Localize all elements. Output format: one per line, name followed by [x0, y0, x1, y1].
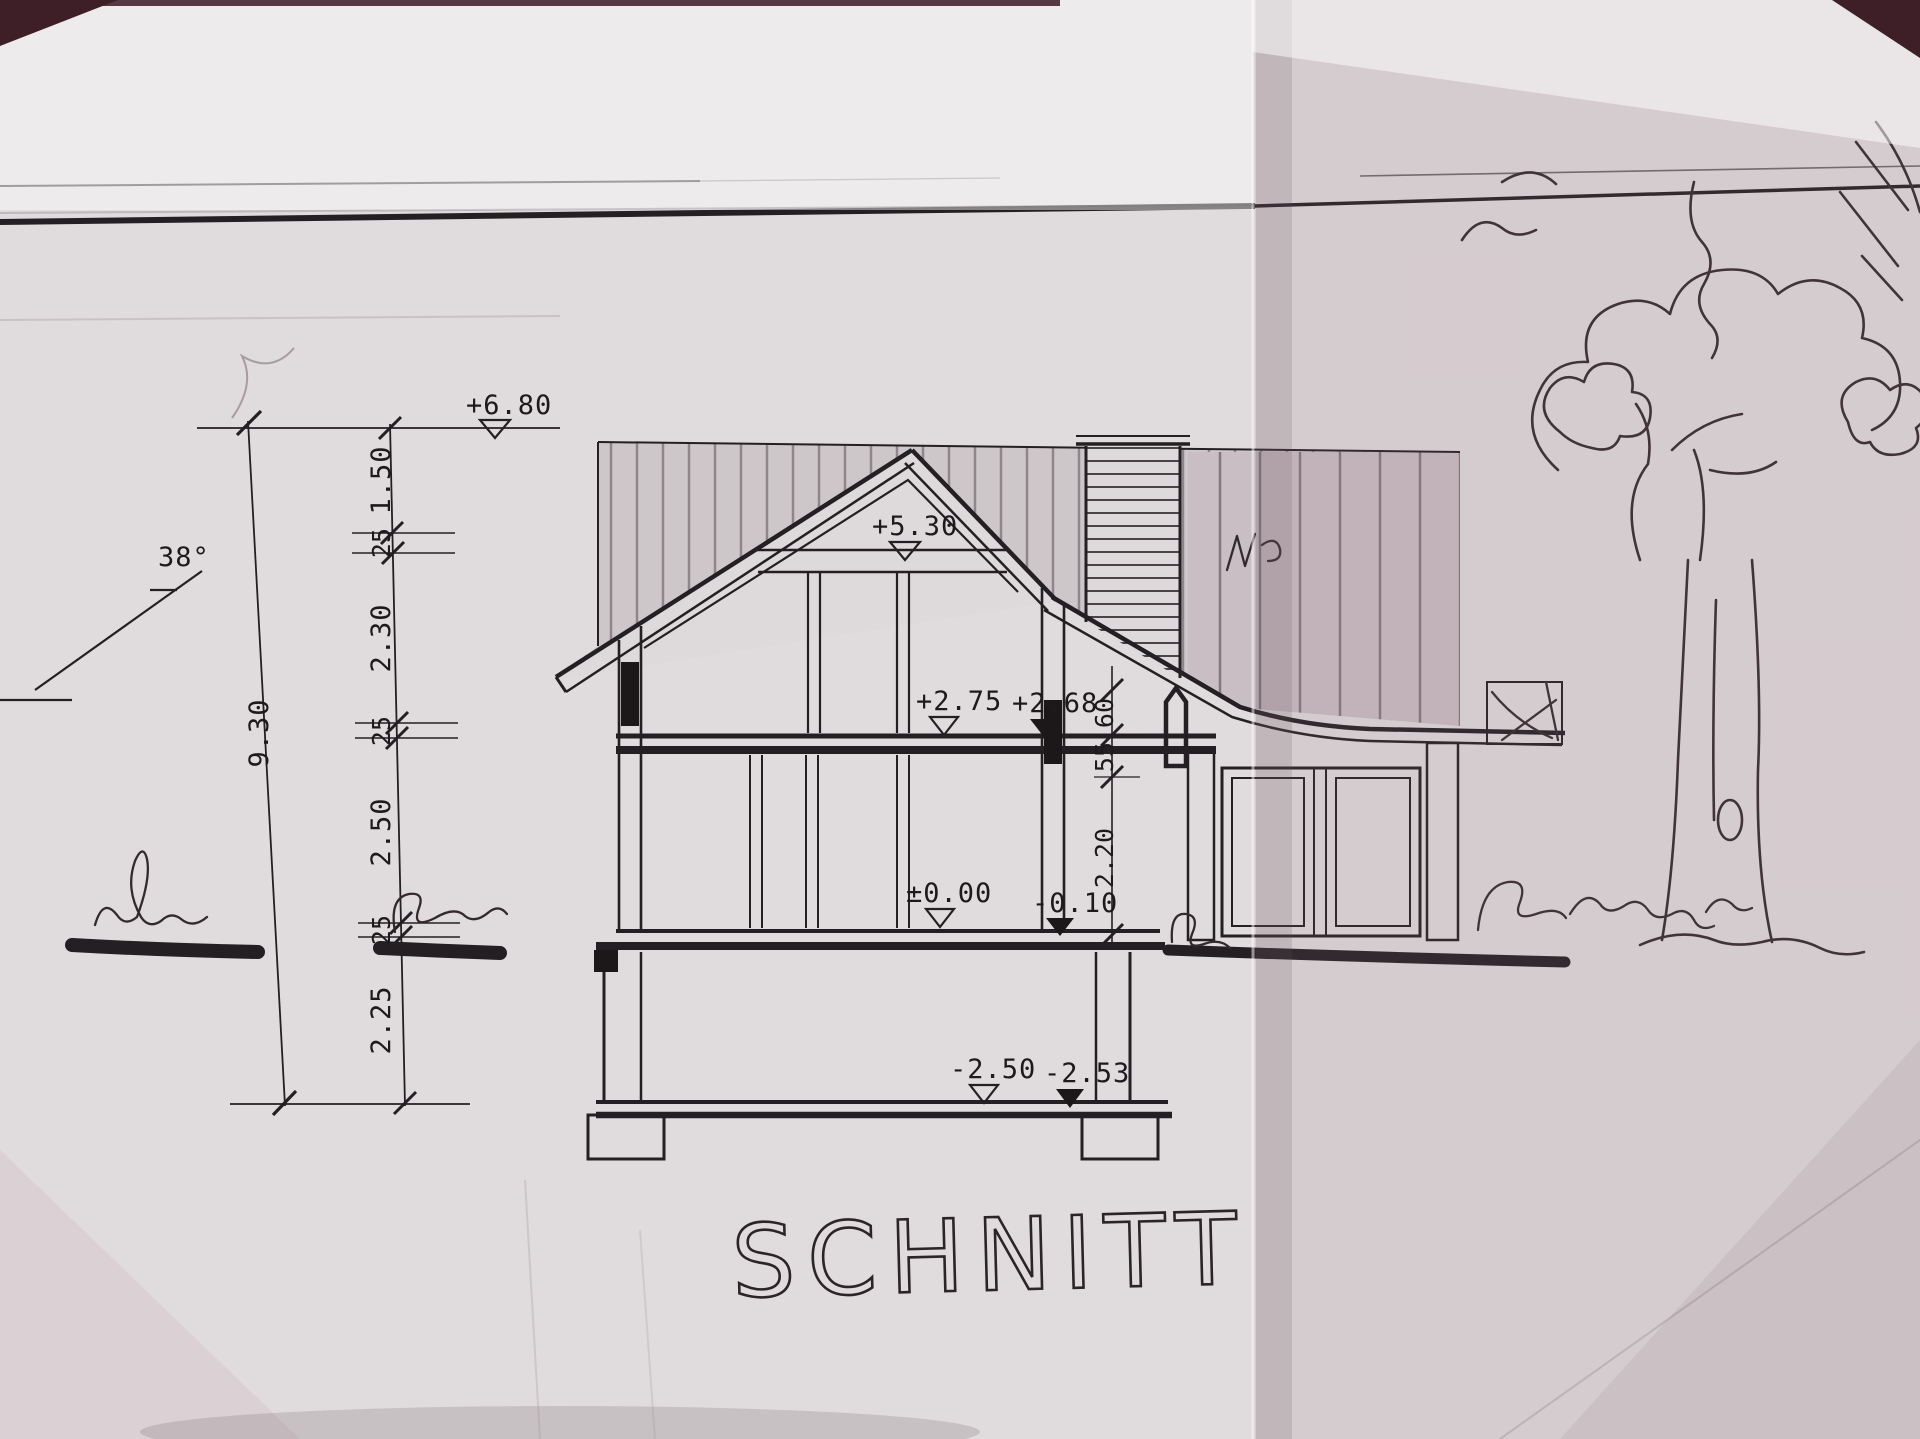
elev-000-label: ±0.00: [906, 878, 992, 909]
elev-ridge-label: +6.80: [466, 390, 552, 421]
table-edge-top-strip: [0, 0, 1060, 6]
dim-2-50: 2.50: [366, 797, 397, 866]
dim-55: 55: [1090, 742, 1119, 772]
dim-25c: 25: [367, 915, 396, 945]
fold-shadow-line: [1256, 0, 1292, 1439]
elev-268-label: +2.68: [1012, 688, 1098, 719]
elev-253-label: -2.53: [1044, 1058, 1130, 1089]
blueprint-photo: 1.50 25 2.30 25 2.50 25 2.25 9.30 38° 60…: [0, 0, 1920, 1439]
dim-25a: 25: [367, 528, 396, 558]
dim-2-30: 2.30: [366, 603, 397, 672]
roof-angle-label: 38°: [158, 542, 210, 573]
drawing-title: SCHNITT: [730, 1190, 1250, 1320]
dim-2-25: 2.25: [366, 985, 397, 1054]
top-bright-band: [0, 0, 1253, 210]
left-window-section: [621, 662, 639, 726]
dim-1-50: 1.50: [366, 445, 397, 514]
photographed-section-drawing: 1.50 25 2.30 25 2.50 25 2.25 9.30 38° 60…: [0, 0, 1920, 1439]
elev-250-label: -2.50: [950, 1054, 1036, 1085]
dim-2-20: 2.20: [1090, 828, 1119, 888]
dim-total-9-30: 9.30: [244, 698, 275, 767]
terrain-bar-middle: [380, 948, 500, 953]
elev-gable-label: +5.30: [872, 511, 958, 542]
dim-25b: 25: [367, 716, 396, 746]
terrain-bar-left: [72, 945, 258, 952]
threshold-block: [594, 950, 618, 972]
elev-275-label: +2.75: [916, 686, 1002, 717]
elev-010-label: -0.10: [1032, 888, 1118, 919]
